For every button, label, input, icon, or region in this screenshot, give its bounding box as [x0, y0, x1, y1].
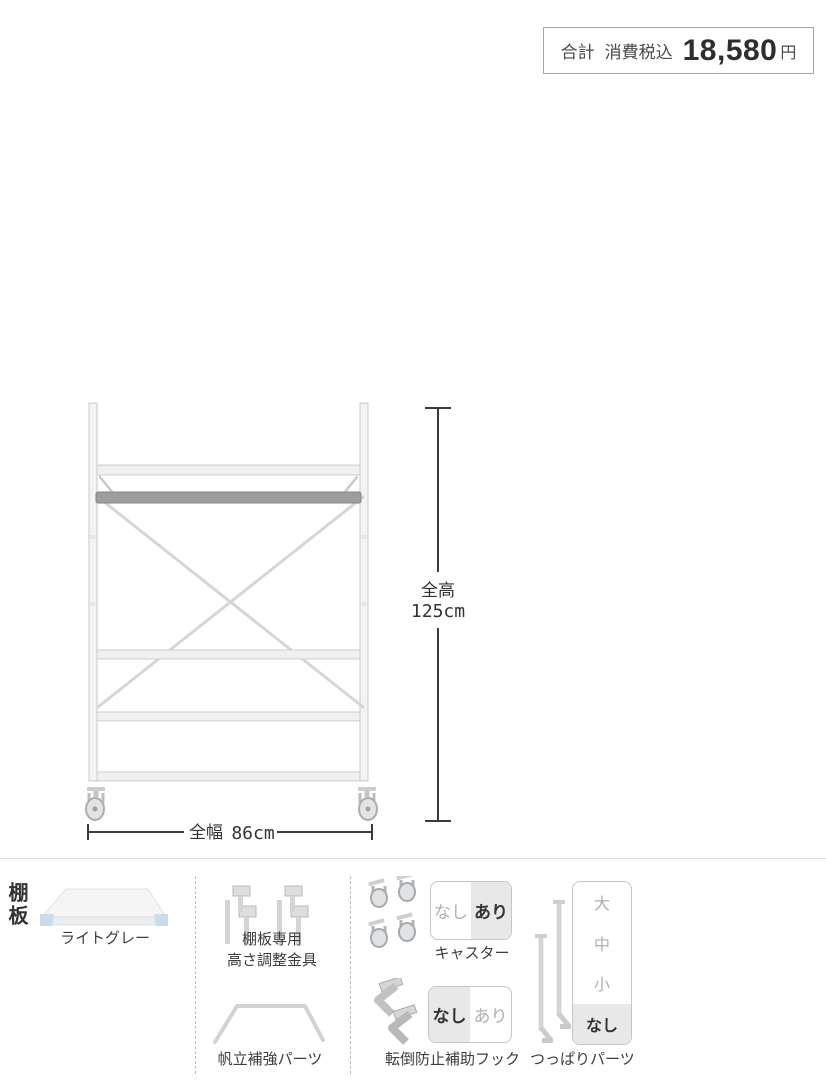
height-adjuster-label-line1: 棚板専用	[212, 931, 332, 949]
total-price-box: 合計 消費税込 18,580 円	[543, 27, 814, 74]
tension-option-large[interactable]: 大	[573, 882, 631, 923]
height-dimension: 全高 125cm	[411, 408, 465, 821]
width-dimension: 全幅 86cm	[88, 823, 372, 844]
caster-wheel-icon	[358, 787, 377, 820]
total-amount: 18,580	[683, 34, 778, 68]
shelf-board-edge	[96, 492, 361, 503]
caster-glyph	[368, 876, 415, 947]
reinforcement-part-icon	[212, 1000, 326, 1046]
anti-tip-hook-label: 転倒防止補助フック	[385, 1051, 517, 1069]
section-divider	[195, 876, 196, 1074]
tax-included-label: 消費税込	[605, 38, 673, 63]
section-divider	[350, 876, 351, 1074]
casters-label: キャスター	[428, 945, 516, 963]
shelf-board-row-label: 棚板	[5, 882, 27, 928]
tension-option-none[interactable]: なし	[573, 1004, 631, 1045]
anti-tip-hook-icon	[366, 978, 428, 1046]
anti-tip-hook-option-none[interactable]: なし	[429, 987, 470, 1042]
total-label: 合計	[561, 38, 595, 63]
currency-label: 円	[780, 39, 796, 63]
anti-tip-hook-toggle: なし あり	[428, 986, 512, 1043]
tension-parts-selector: 大 中 小 なし	[572, 881, 632, 1045]
tension-parts-label: つっぱりパーツ	[530, 1051, 634, 1069]
casters-icon	[362, 876, 428, 962]
height-dim-value: 125cm	[411, 601, 465, 622]
shelf-board-icon	[36, 884, 170, 932]
casters-option-none[interactable]: なし	[431, 882, 471, 939]
options-panel-divider	[0, 858, 826, 859]
rack-diagram: 全高 125cm 全幅 86cm	[60, 395, 480, 860]
caster-wheel-icon	[86, 787, 105, 820]
tension-parts-icon	[533, 898, 571, 1048]
shelf-color-label: ライトグレー	[30, 930, 180, 948]
anti-tip-hook-option-yes[interactable]: あり	[470, 987, 511, 1042]
width-dim-value: 86cm	[231, 823, 274, 844]
height-dim-label: 全高	[421, 581, 455, 600]
product-configurator-page: 合計 消費税込 18,580 円	[0, 0, 826, 1080]
width-dim-label: 全幅	[189, 823, 223, 842]
height-adjuster-label-line2: 高さ調整金具	[212, 952, 332, 970]
casters-toggle: なし あり	[430, 881, 512, 940]
tension-option-medium[interactable]: 中	[573, 923, 631, 964]
reinforcement-label: 帆立補強パーツ	[212, 1051, 328, 1069]
rack-illustration	[86, 403, 377, 820]
casters-option-yes[interactable]: あり	[471, 882, 511, 939]
tension-option-small[interactable]: 小	[573, 963, 631, 1004]
